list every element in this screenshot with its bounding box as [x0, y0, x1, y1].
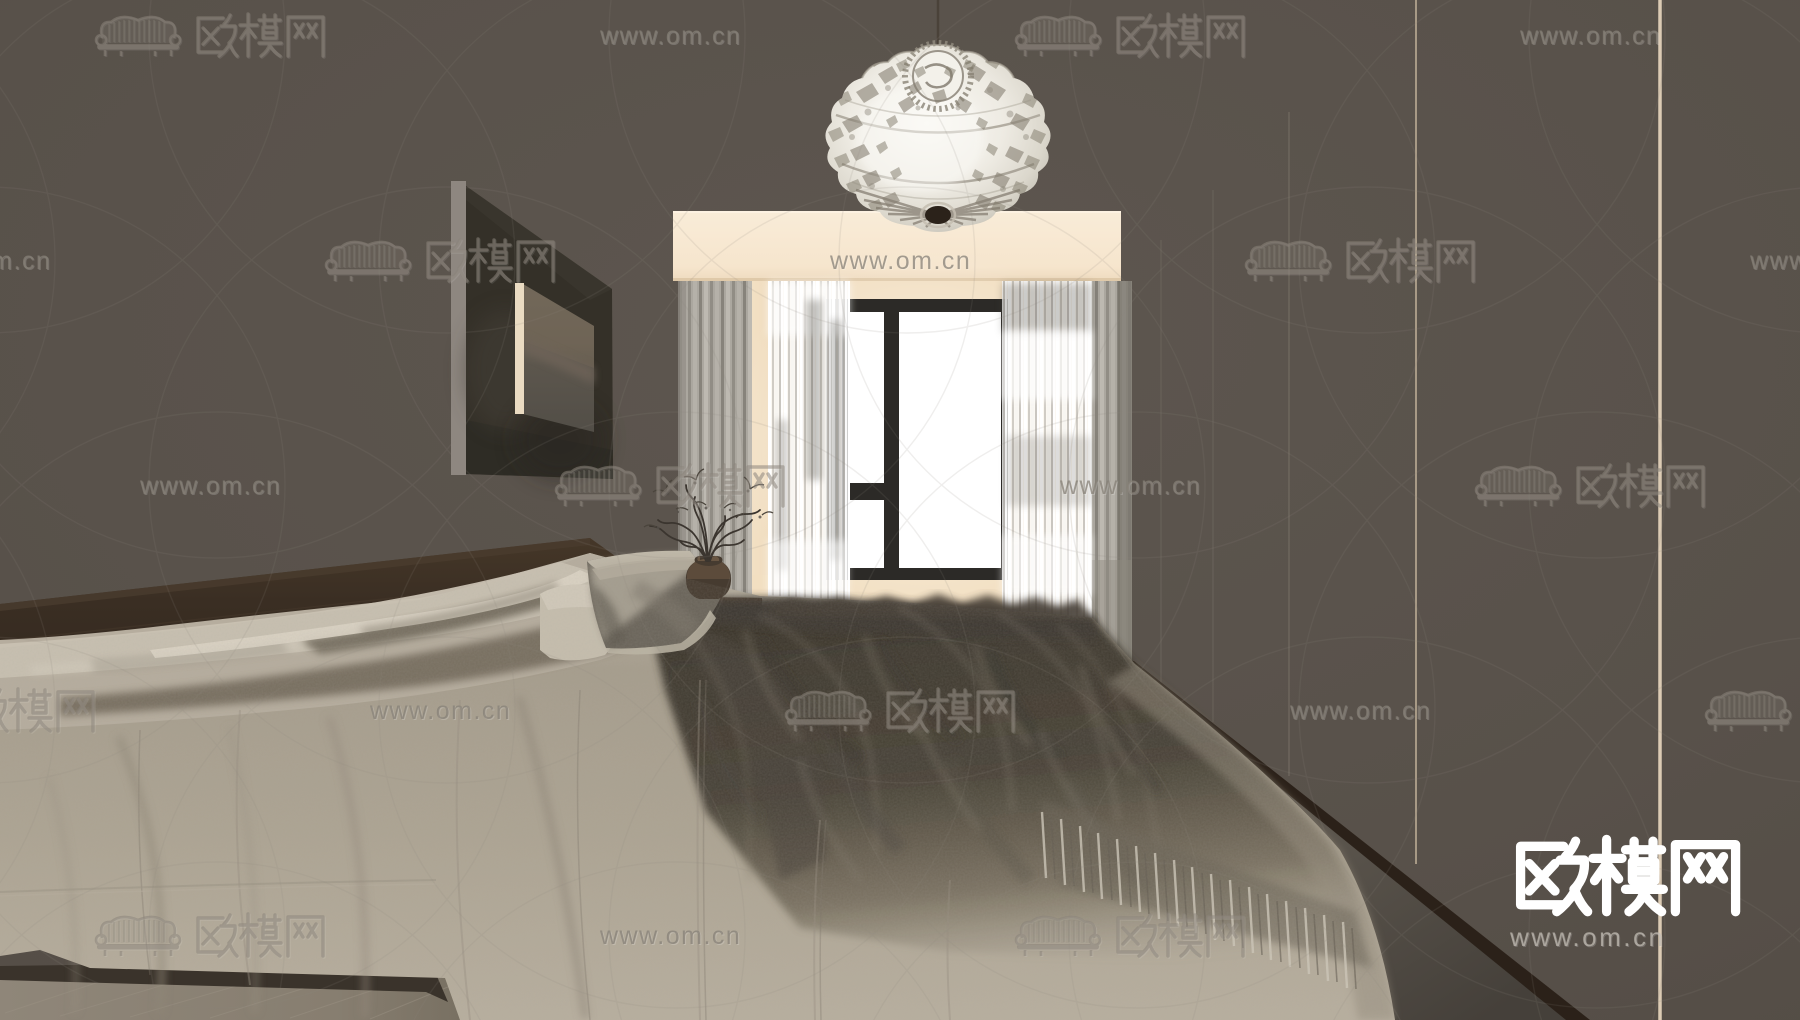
svg-text:www.om.cn: www.om.cn	[1289, 697, 1431, 725]
svg-text:www.om.cn: www.om.cn	[1519, 22, 1661, 50]
svg-text:www.om.cn: www.om.cn	[829, 247, 971, 275]
svg-text:www.om.cn: www.om.cn	[0, 247, 51, 275]
svg-text:www.om.cn: www.om.cn	[139, 472, 281, 500]
svg-text:www.om.cn: www.om.cn	[1509, 922, 1665, 952]
svg-text:www.om.cn: www.om.cn	[599, 22, 741, 50]
svg-text:www.om.cn: www.om.cn	[1749, 247, 1800, 275]
svg-text:www.om.cn: www.om.cn	[369, 697, 511, 725]
svg-text:www.om.cn: www.om.cn	[1059, 472, 1201, 500]
svg-text:www.om.cn: www.om.cn	[599, 922, 741, 950]
